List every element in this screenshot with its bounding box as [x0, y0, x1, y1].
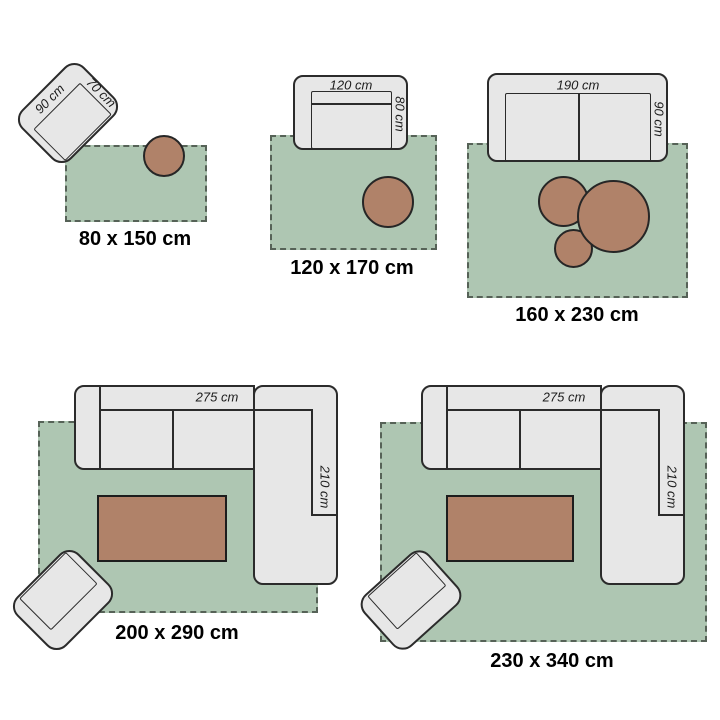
seat-divider-line	[172, 409, 174, 469]
sofa-seat	[311, 91, 392, 149]
sofa-depth-label: 210 cm	[665, 466, 680, 509]
chaise-armrest-line-vertical	[658, 409, 660, 515]
chaise-armrest-line-horizontal	[658, 514, 683, 516]
armchair-seat	[19, 552, 97, 630]
backrest-line	[99, 409, 312, 411]
sofa-width-label: 275 cm	[196, 390, 239, 405]
sofa-width-label: 275 cm	[543, 390, 586, 405]
rug-size-guide: 90 cm 70 cm 80 x 150 cm 120 cm 80 cm 120…	[0, 0, 720, 720]
sofa-width-label: 190 cm	[557, 78, 600, 93]
size-title: 200 x 290 cm	[115, 622, 238, 645]
size-title: 120 x 170 cm	[290, 257, 413, 280]
size-title: 230 x 340 cm	[490, 650, 613, 673]
coffee-table	[446, 495, 574, 562]
side-table	[143, 135, 185, 177]
sofa: 120 cm 80 cm	[293, 75, 408, 150]
seat-divider-line	[578, 93, 580, 162]
rug-80x150	[65, 145, 207, 222]
side-table-large	[577, 180, 650, 253]
chaise-armrest-line-vertical	[311, 409, 313, 515]
sofa-cushion-line	[311, 103, 392, 105]
size-title: 80 x 150 cm	[79, 228, 191, 251]
chaise-armrest-line-horizontal	[311, 514, 336, 516]
sofa-depth-label: 210 cm	[318, 466, 333, 509]
sofa-width-label: 120 cm	[330, 78, 373, 93]
sofa-depth-label: 80 cm	[393, 96, 408, 131]
size-title: 160 x 230 cm	[515, 304, 638, 327]
sofa-depth-label: 90 cm	[652, 101, 667, 136]
armrest-line	[446, 387, 448, 468]
armrest-line	[99, 387, 101, 468]
seat-divider-line	[519, 409, 521, 469]
sofa: 190 cm 90 cm	[487, 73, 668, 162]
backrest-line	[446, 409, 659, 411]
side-table	[362, 176, 414, 228]
coffee-table	[97, 495, 227, 562]
